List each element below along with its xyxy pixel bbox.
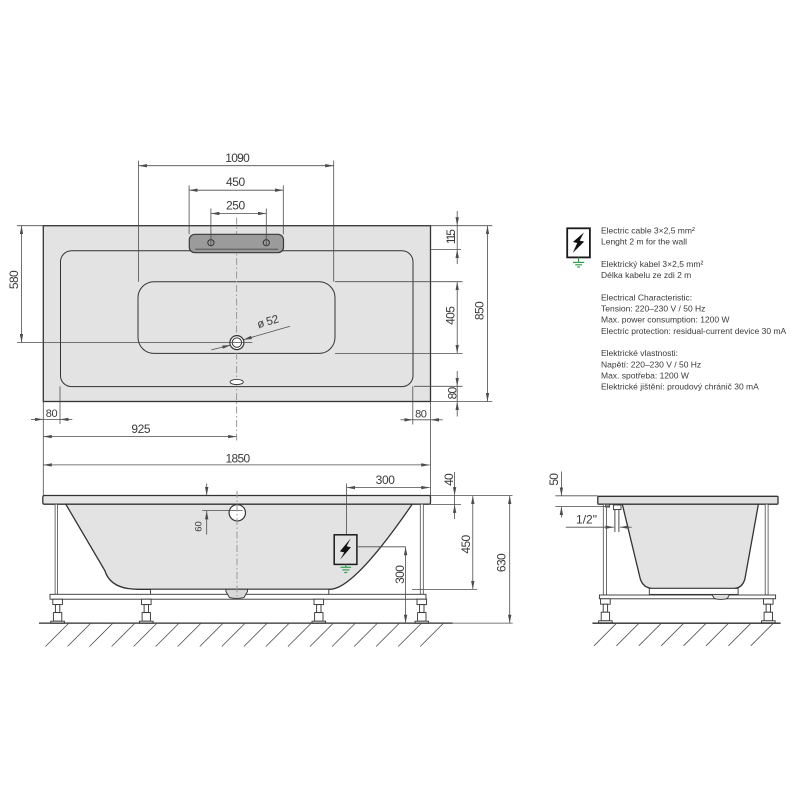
svg-text:300: 300 [393, 565, 407, 584]
svg-text:Electrical Characteristic:: Electrical Characteristic: [601, 292, 692, 302]
svg-text:80: 80 [415, 408, 427, 420]
svg-text:Elektrický kabel 3×2,5 mm²: Elektrický kabel 3×2,5 mm² [601, 259, 703, 269]
svg-text:Max. power consumption: 1200 W: Max. power consumption: 1200 W [601, 315, 730, 325]
svg-text:Electric protection: residual-: Electric protection: residual-current de… [601, 326, 787, 336]
svg-text:450: 450 [459, 534, 473, 553]
svg-text:1090: 1090 [225, 151, 250, 165]
svg-text:115: 115 [444, 229, 458, 244]
svg-text:60: 60 [194, 521, 205, 532]
svg-text:40: 40 [442, 473, 456, 486]
svg-text:Max. spotřeba: 1200 W: Max. spotřeba: 1200 W [601, 371, 689, 381]
svg-text:250: 250 [226, 199, 246, 213]
svg-text:Elektrické vlastnosti:: Elektrické vlastnosti: [601, 348, 678, 358]
svg-text:Lenght 2 m for the wall: Lenght 2 m for the wall [601, 237, 687, 247]
svg-text:Elektrické jištění: proudový c: Elektrické jištění: proudový chránič 30 … [601, 382, 759, 392]
svg-text:1/2": 1/2" [576, 512, 597, 526]
svg-text:Electric cable 3×2,5 mm²: Electric cable 3×2,5 mm² [601, 225, 695, 235]
svg-text:850: 850 [473, 301, 487, 320]
svg-text:50: 50 [547, 473, 561, 486]
svg-text:Délka kabelu ze zdi 2 m: Délka kabelu ze zdi 2 m [601, 270, 691, 280]
svg-text:925: 925 [131, 422, 151, 436]
svg-text:80: 80 [46, 408, 58, 420]
svg-text:580: 580 [7, 270, 21, 289]
svg-text:300: 300 [376, 473, 396, 487]
svg-text:Napětí: 220–230 V / 50 Hz: Napětí: 220–230 V / 50 Hz [601, 359, 701, 369]
svg-text:Tension: 220–230 V / 50 Hz: Tension: 220–230 V / 50 Hz [601, 304, 705, 314]
svg-text:450: 450 [226, 175, 246, 189]
svg-text:405: 405 [443, 306, 457, 325]
svg-text:80: 80 [445, 387, 459, 400]
svg-text:1850: 1850 [226, 452, 251, 466]
svg-text:630: 630 [494, 553, 508, 572]
